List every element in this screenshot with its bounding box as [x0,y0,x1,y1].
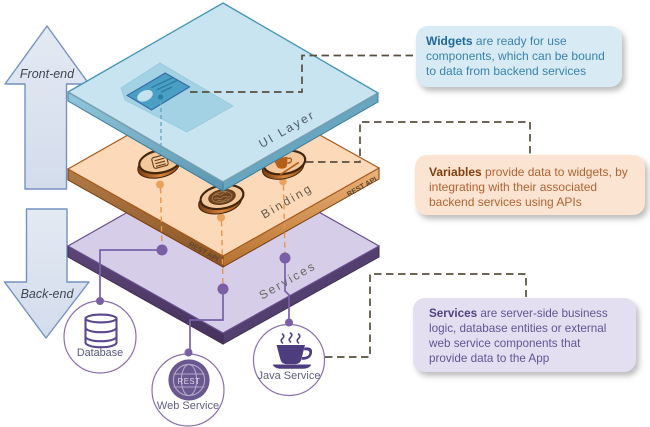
svg-text:Services are server-side busin: Services are server-side business [429,307,608,320]
svg-text:provide data to the App: provide data to the App [429,352,550,365]
svg-text:Variables provide data to widg: Variables provide data to widgets, by [429,165,628,179]
svg-text:backend services using APIs: backend services using APIs [429,195,582,209]
svg-text:components, which can be bound: components, which can be bound [426,49,605,63]
svg-text:Web Service: Web Service [157,400,219,412]
svg-text:web service components that: web service components that [428,337,581,350]
svg-text:Database: Database [77,347,123,359]
svg-text:REST: REST [178,377,201,386]
svg-text:Java Service: Java Service [258,370,321,382]
svg-text:integrating with their associa: integrating with their associated [429,180,597,194]
svg-text:logic, database entities or ex: logic, database entities or external [429,322,606,335]
svg-text:to data from backend services: to data from backend services [426,64,586,78]
svg-text:Widgets are ready for use: Widgets are ready for use [426,34,567,48]
svg-text:Front-end: Front-end [20,67,75,81]
svg-text:Back-end: Back-end [21,287,75,301]
